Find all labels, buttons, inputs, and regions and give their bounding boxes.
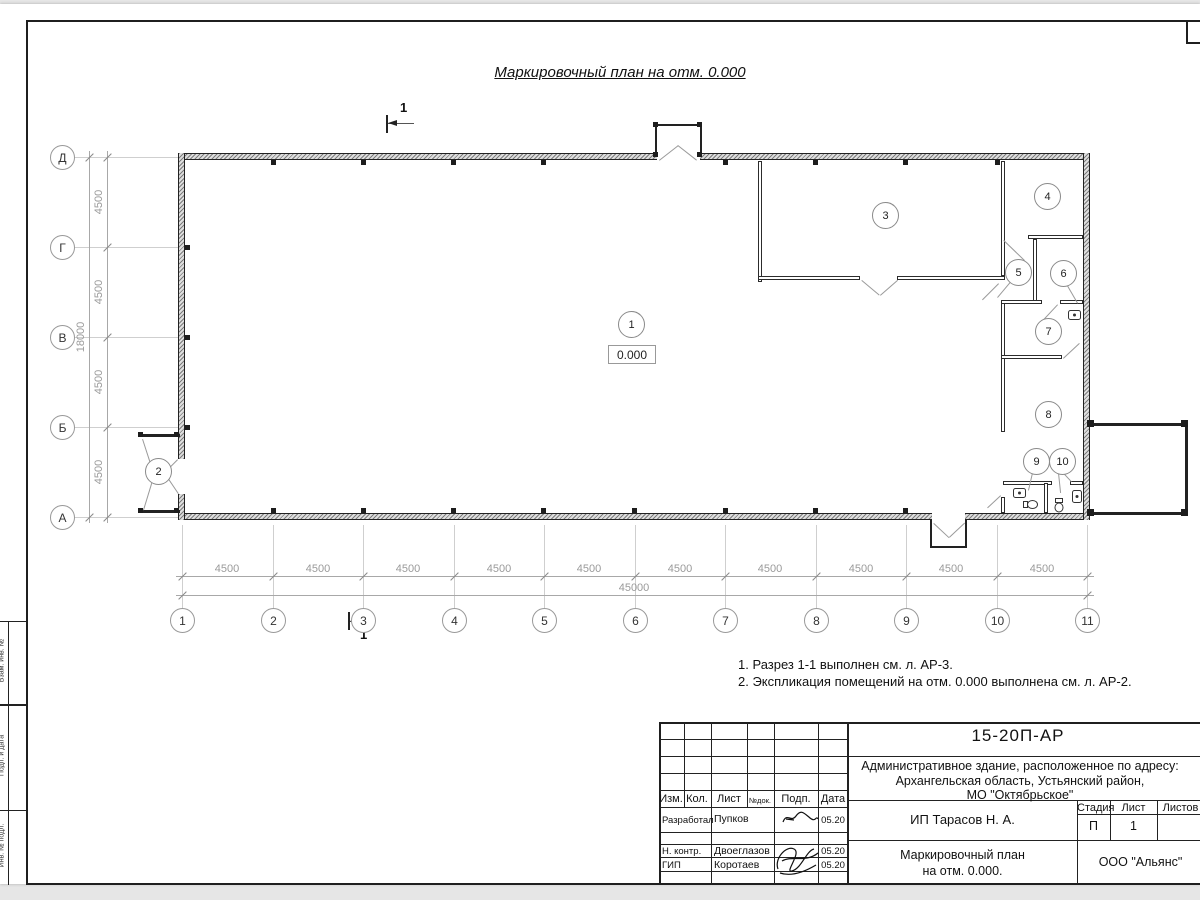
axis-bubble: В xyxy=(50,325,75,350)
dimension-value: 4500 xyxy=(93,185,105,219)
note-line: 1. Разрез 1-1 выполнен см. л. АР-3. xyxy=(738,656,1132,673)
col-header: Подп. xyxy=(776,793,816,805)
sink-icon xyxy=(1072,490,1082,503)
column-pilaster xyxy=(903,160,908,165)
room-marker: 5 xyxy=(1005,259,1032,286)
room-marker: 4 xyxy=(1034,183,1061,210)
elevation-mark: 0.000 xyxy=(608,345,656,364)
stage-label: Стадия xyxy=(1077,802,1110,814)
column-pilaster xyxy=(723,160,728,165)
partition-wall xyxy=(1001,300,1005,432)
column-pilaster xyxy=(138,432,143,437)
person-name: Двоеглазов xyxy=(714,845,770,857)
dimension-value: 4500 xyxy=(934,563,968,575)
platform-edge xyxy=(1185,423,1188,515)
person-name: Коротаев xyxy=(714,859,759,871)
column-pilaster xyxy=(653,122,658,127)
partition-wall xyxy=(1060,300,1083,304)
column-pilaster xyxy=(174,508,179,513)
partition-wall xyxy=(1001,497,1005,513)
room-marker: 8 xyxy=(1035,401,1062,428)
object-line: Архангельская область, Устьянский район, xyxy=(852,774,1188,789)
wall-segment xyxy=(178,153,657,160)
dimension-value: 4500 xyxy=(482,563,516,575)
title-block-line xyxy=(1077,814,1200,815)
wall-segment xyxy=(700,153,1090,160)
doc-number: 15-20П-АР xyxy=(848,726,1188,746)
partition-wall xyxy=(897,276,1005,280)
dimension-value: 4500 xyxy=(210,563,244,575)
axis-bubble: 5 xyxy=(532,608,557,633)
axis-bubble: 10 xyxy=(985,608,1010,633)
wall-segment xyxy=(178,494,185,520)
paper-sheet: Взам. инв. № Подп. и дата Инв. № подл. М… xyxy=(0,4,1200,884)
col-header: Дата xyxy=(813,793,853,805)
column-pilaster xyxy=(1181,420,1188,427)
axis-bubble: 6 xyxy=(623,608,648,633)
partition-wall xyxy=(1001,161,1005,276)
room-marker: 9 xyxy=(1023,448,1050,475)
column-pilaster xyxy=(903,508,908,513)
object-line: Административное здание, расположенное п… xyxy=(852,759,1188,774)
notes-block: 1. Разрез 1-1 выполнен см. л. АР-3. 2. Э… xyxy=(738,656,1132,690)
page-title: Маркировочный план на отм. 0.000 xyxy=(420,64,820,81)
partition-wall xyxy=(758,161,762,282)
axis-bubble: Д xyxy=(50,145,75,170)
wall-segment xyxy=(178,153,185,459)
title-block-line xyxy=(659,756,1200,757)
object-description: Административное здание, расположенное п… xyxy=(852,759,1188,803)
room-marker: 7 xyxy=(1035,318,1062,345)
section-arrow-icon xyxy=(388,120,397,126)
sheet-value: 1 xyxy=(1110,819,1157,833)
axis-bubble: 7 xyxy=(713,608,738,633)
room-marker: 10 xyxy=(1049,448,1076,475)
sink-icon xyxy=(1013,488,1026,498)
dimension-value: 4500 xyxy=(663,563,697,575)
platform-edge xyxy=(1090,423,1188,426)
dimension-value: 4500 xyxy=(301,563,335,575)
partition-wall xyxy=(1001,355,1062,359)
room-marker: 1 xyxy=(618,311,645,338)
wall-segment xyxy=(965,513,1090,520)
porch-wall xyxy=(655,124,702,126)
dimension-value: 4500 xyxy=(93,455,105,489)
room-marker: 2 xyxy=(145,458,172,485)
column-pilaster xyxy=(1087,420,1094,427)
toilet-icon xyxy=(1023,498,1039,511)
column-pilaster xyxy=(451,160,456,165)
porch-wall xyxy=(930,520,932,548)
dimension-total: 18000 xyxy=(75,315,87,359)
column-pilaster xyxy=(1087,509,1094,516)
column-pilaster xyxy=(995,160,1000,165)
title-block-line xyxy=(659,790,848,791)
client-name: ИП Тарасов Н. А. xyxy=(848,812,1077,827)
signature-icon xyxy=(772,841,824,877)
title-block-line xyxy=(659,773,848,774)
porch-wall xyxy=(930,546,967,548)
column-pilaster xyxy=(361,160,366,165)
note-line: 2. Экспликация помещений на отм. 0.000 в… xyxy=(738,673,1132,690)
dimension-value: 4500 xyxy=(391,563,425,575)
partition-wall xyxy=(1070,481,1083,485)
column-pilaster xyxy=(697,152,702,157)
drawing-name: Маркировочный план на отм. 0.000. xyxy=(848,847,1077,879)
title-block-line xyxy=(659,739,848,740)
room-marker: 3 xyxy=(872,202,899,229)
platform-edge xyxy=(1090,512,1188,515)
room-marker: 6 xyxy=(1050,260,1077,287)
column-pilaster xyxy=(451,508,456,513)
dimension-value: 4500 xyxy=(844,563,878,575)
axis-bubble: 8 xyxy=(804,608,829,633)
column-pilaster xyxy=(361,508,366,513)
column-pilaster xyxy=(723,508,728,513)
dimension-value: 4500 xyxy=(93,275,105,309)
axis-bubble: Г xyxy=(50,235,75,260)
partition-wall xyxy=(758,276,860,280)
partition-wall xyxy=(1001,300,1042,304)
partition-wall xyxy=(1044,483,1048,513)
axis-bubble: А xyxy=(50,505,75,530)
toilet-icon xyxy=(1053,498,1065,513)
dimension-value: 4500 xyxy=(93,365,105,399)
dimension-value: 4500 xyxy=(1025,563,1059,575)
drawing-name-line: на отм. 0.000. xyxy=(848,863,1077,879)
column-pilaster xyxy=(813,160,818,165)
axis-bubble: 11 xyxy=(1075,608,1100,633)
sheet-label: Лист xyxy=(1110,802,1157,814)
axis-bubble: Б xyxy=(50,415,75,440)
dimension-line xyxy=(176,595,1094,596)
margin-label: Взам. инв. № xyxy=(0,621,6,701)
drawing-viewer: Взам. инв. № Подп. и дата Инв. № подл. М… xyxy=(0,0,1200,900)
axis-bubble: 2 xyxy=(261,608,286,633)
person-name: Пупков xyxy=(714,813,749,825)
axis-bubble: 4 xyxy=(442,608,467,633)
margin-divider xyxy=(0,704,26,706)
margin-label: Инв. № подл. xyxy=(0,806,6,886)
partition-wall xyxy=(1033,239,1037,302)
date-value: 05.20 xyxy=(819,815,847,826)
column-pilaster xyxy=(271,508,276,513)
wall-segment xyxy=(1083,153,1090,520)
column-pilaster xyxy=(632,508,637,513)
sink-icon xyxy=(1068,310,1081,320)
sheets-label: Листов xyxy=(1157,802,1200,814)
title-block-line xyxy=(659,832,848,833)
column-pilaster xyxy=(271,160,276,165)
dimension-total: 45000 xyxy=(612,582,656,594)
stage-value: П xyxy=(1077,819,1110,833)
col-header: №док. xyxy=(740,796,780,805)
axis-bubble: 9 xyxy=(894,608,919,633)
axis-bubble: 3 xyxy=(351,608,376,633)
column-pilaster xyxy=(697,122,702,127)
wall-segment xyxy=(178,513,932,520)
dimension-value: 4500 xyxy=(572,563,606,575)
object-line: МО "Октябрьское" xyxy=(852,788,1188,803)
margin-label: Подп. и дата xyxy=(0,716,6,796)
column-pilaster xyxy=(1181,509,1188,516)
role-label: Н. контр. xyxy=(662,846,701,857)
column-pilaster xyxy=(653,152,658,157)
title-block-line xyxy=(849,840,1200,841)
margin-column-line xyxy=(8,621,9,885)
company-name: ООО "Альянс" xyxy=(1077,855,1200,869)
role-label: ГИП xyxy=(662,860,681,871)
column-pilaster xyxy=(541,160,546,165)
title-block-line xyxy=(659,807,848,808)
role-label: Разработал xyxy=(662,815,714,826)
column-pilaster xyxy=(185,245,190,250)
column-pilaster xyxy=(813,508,818,513)
dimension-value: 4500 xyxy=(753,563,787,575)
column-pilaster xyxy=(185,335,190,340)
drawing-name-line: Маркировочный план xyxy=(848,847,1077,863)
column-pilaster xyxy=(541,508,546,513)
axis-bubble: 1 xyxy=(170,608,195,633)
dimension-line xyxy=(89,151,90,523)
signature-icon xyxy=(780,809,820,827)
column-pilaster xyxy=(174,432,179,437)
porch-wall xyxy=(965,520,967,548)
frame-corner-cell xyxy=(1186,20,1200,44)
column-pilaster xyxy=(185,425,190,430)
section-label: 1 xyxy=(400,100,407,115)
